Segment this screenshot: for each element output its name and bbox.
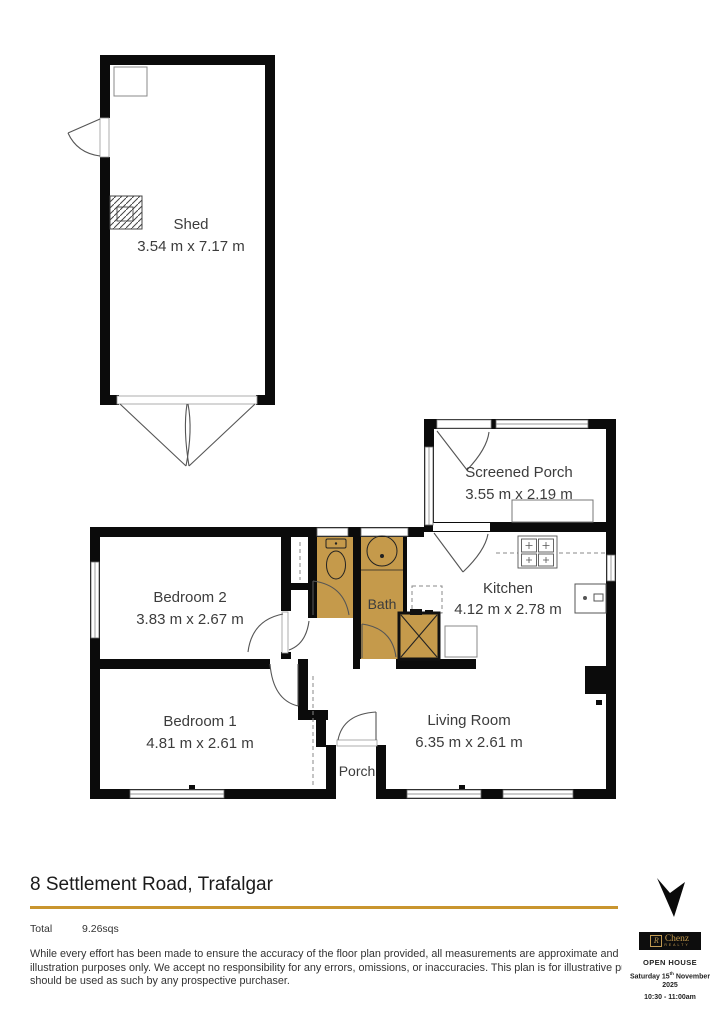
house-plan: Screened Porch 3.55 m x 2.19 m Kitchen 4… — [90, 419, 616, 799]
disclaimer-text: While every effort has been made to ensu… — [30, 948, 622, 989]
open-house-date: Saturday 15th November — [620, 971, 720, 980]
disclaimer-line: While every effort has been made to ensu… — [30, 948, 622, 962]
open-house-year: 2025 — [620, 982, 720, 989]
kitchen-dims: 4.12 m x 2.78 m — [454, 601, 562, 618]
shed-side-door — [100, 118, 109, 157]
bedroom2-door — [282, 612, 288, 653]
floor-plan-drawing: Shed 3.54 m x 7.17 m — [0, 0, 725, 870]
wc-floor — [317, 537, 353, 618]
stove-icon — [518, 536, 557, 568]
total-value: 9.26sqs — [82, 923, 119, 935]
living-room-dims: 6.35 m x 2.61 m — [415, 734, 523, 751]
total-label: Total — [30, 923, 52, 935]
shed-label: Shed — [173, 216, 208, 233]
front-door — [337, 740, 377, 746]
property-address: 8 Settlement Road, Trafalgar — [30, 874, 273, 896]
disclaimer-line: should be used as such by any prospectiv… — [30, 975, 622, 989]
open-house-label: OPEN HOUSE — [620, 958, 720, 967]
date-prefix: Saturday 15 — [630, 973, 670, 980]
shower-icon — [399, 609, 439, 659]
fireplace-icon — [585, 666, 606, 694]
shed-hatched-fixture-icon — [110, 196, 142, 229]
agency-logo: R Chenz REALTY — [639, 932, 701, 950]
bedroom2-door-swing-icon — [248, 614, 309, 652]
open-house-time: 10:30 - 11:00am — [620, 994, 720, 1001]
agency-subtitle: REALTY — [664, 944, 689, 948]
north-arrow-icon — [649, 872, 691, 920]
laundry-trough-icon — [445, 626, 477, 657]
accent-divider — [30, 906, 618, 909]
total-area-row: Total 9.26sqs — [30, 923, 52, 935]
shed-room: Shed 3.54 m x 7.17 m — [68, 55, 275, 466]
disclaimer-line: illustration purposes only. We accept no… — [30, 962, 622, 976]
shed-dims: 3.54 m x 7.17 m — [137, 238, 245, 255]
floor-plan-page: Shed 3.54 m x 7.17 m — [0, 0, 725, 1024]
bedroom2-label: Bedroom 2 — [153, 589, 226, 606]
shed-side-door-swing-icon — [68, 119, 100, 156]
porch-label: Porch — [339, 763, 376, 779]
kitchen-label: Kitchen — [483, 580, 533, 597]
living-room-label: Living Room — [427, 712, 510, 729]
shed-bench-icon — [114, 67, 147, 96]
bath-label: Bath — [368, 596, 397, 612]
screened-porch-door — [437, 420, 491, 428]
bedroom1-door-swing-icon — [270, 664, 298, 706]
shed-double-door — [117, 396, 257, 404]
date-suffix: November — [674, 973, 710, 980]
sink-icon — [575, 584, 606, 613]
bedroom2-dims: 3.83 m x 2.67 m — [136, 611, 244, 628]
porch-bench-icon — [512, 500, 593, 522]
bedroom1-dims: 4.81 m x 2.61 m — [146, 735, 254, 752]
screened-porch-dims: 3.55 m x 2.19 m — [465, 486, 573, 503]
kitchen-door-swing-icon — [434, 533, 488, 572]
front-door-swing-icon — [338, 712, 376, 740]
linen-closet — [412, 586, 442, 613]
branding-block: R Chenz REALTY OPEN HOUSE Saturday 15th … — [620, 872, 720, 1001]
shed-door-swing-icon — [120, 404, 255, 466]
bedroom1-label: Bedroom 1 — [163, 713, 236, 730]
screened-porch-label: Screened Porch — [465, 464, 573, 481]
agency-monogram: R — [650, 935, 662, 947]
